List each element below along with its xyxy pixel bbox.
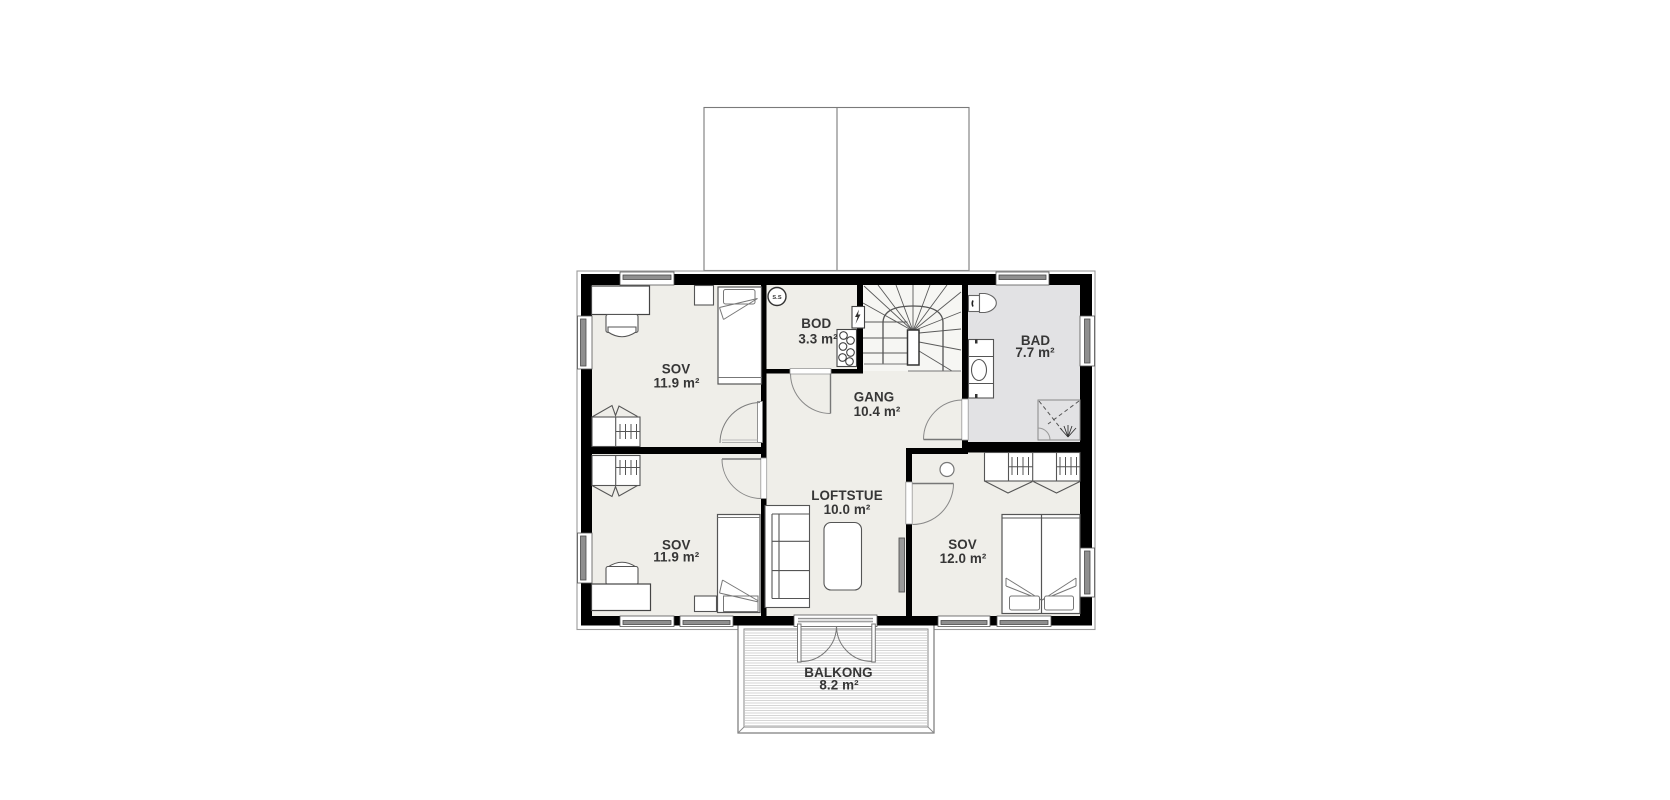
svg-text:8.2 m²: 8.2 m²: [819, 678, 859, 693]
svg-text:GANG: GANG: [854, 390, 895, 405]
svg-text:SOV: SOV: [662, 362, 691, 377]
svg-text:SOV: SOV: [948, 537, 977, 552]
svg-text:11.9 m²: 11.9 m²: [653, 550, 700, 565]
svg-text:LOFTSTUE: LOFTSTUE: [811, 488, 882, 503]
svg-text:BOD: BOD: [801, 316, 831, 331]
svg-text:S.S: S.S: [772, 295, 781, 301]
svg-text:10.0 m²: 10.0 m²: [824, 502, 871, 517]
svg-text:3.3 m²: 3.3 m²: [798, 332, 838, 347]
svg-text:12.0 m²: 12.0 m²: [940, 551, 987, 566]
svg-text:11.9 m²: 11.9 m²: [653, 376, 700, 391]
svg-text:10.4 m²: 10.4 m²: [854, 404, 901, 419]
svg-text:7.7 m²: 7.7 m²: [1015, 345, 1055, 360]
